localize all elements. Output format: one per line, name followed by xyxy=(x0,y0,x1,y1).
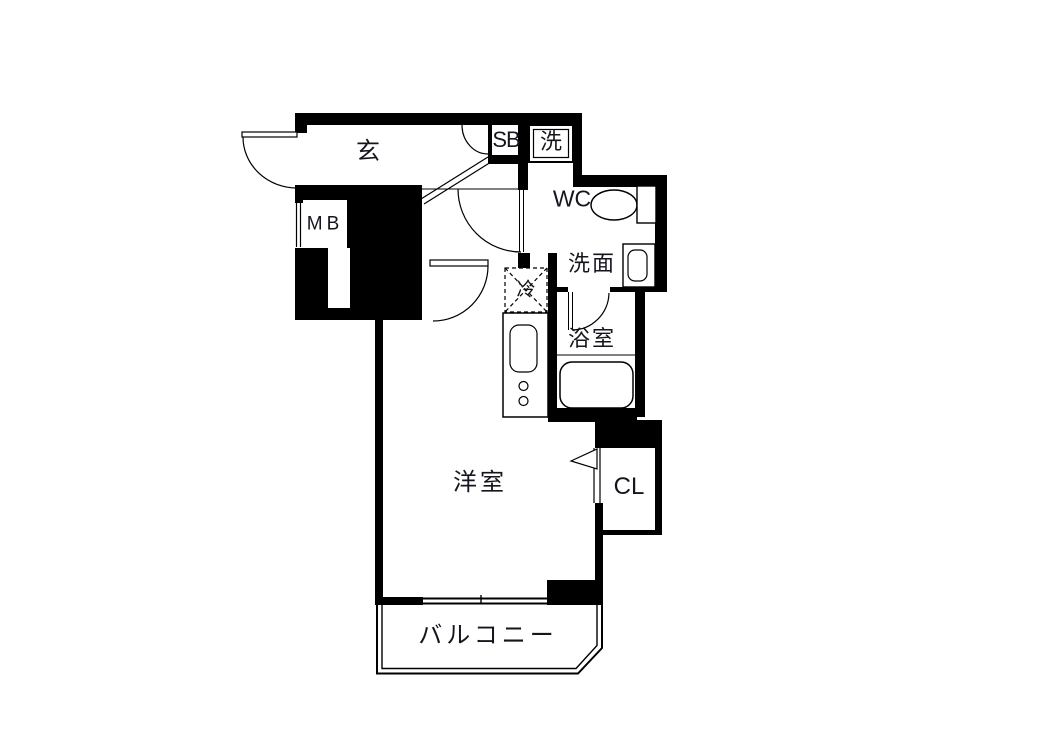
room-label-shoe-box: SB xyxy=(492,129,519,151)
room-label-closet: CL xyxy=(614,475,645,499)
entrance-step-icon xyxy=(421,157,519,204)
room-label-genkan: 玄 xyxy=(356,140,380,164)
shoebox-door-icon xyxy=(462,125,488,154)
room-label-meter-box: MB xyxy=(307,215,344,234)
entrance-door-icon xyxy=(242,132,297,188)
washroom-door-icon xyxy=(458,189,524,252)
walls xyxy=(295,113,667,605)
pipe-space-slot xyxy=(328,248,350,308)
toilet-bowl-icon xyxy=(591,186,656,223)
closet-folding-door-icon xyxy=(571,448,600,503)
bathroom-door-icon xyxy=(569,292,610,330)
sliding-window-icon xyxy=(423,595,547,605)
western-room-door-icon xyxy=(430,260,488,321)
bathtub-icon xyxy=(557,355,635,408)
room-label-washroom: 洗面 xyxy=(568,253,616,275)
floor-plan: 玄 SB 洗 WC 洗面 MB 冷 浴室 洋室 CL バルコニー xyxy=(0,0,1040,745)
room-label-refrigerator: 冷 xyxy=(516,281,535,300)
room-label-western-room: 洋室 xyxy=(453,471,507,495)
wash-basin-icon xyxy=(623,244,655,287)
room-label-wc: WC xyxy=(553,188,591,211)
meter-box-door-icon xyxy=(297,203,301,247)
room-label-balcony: バルコニー xyxy=(418,624,558,648)
room-label-bathroom: 浴室 xyxy=(568,328,616,350)
room-label-washing-machine: 洗 xyxy=(540,131,562,153)
